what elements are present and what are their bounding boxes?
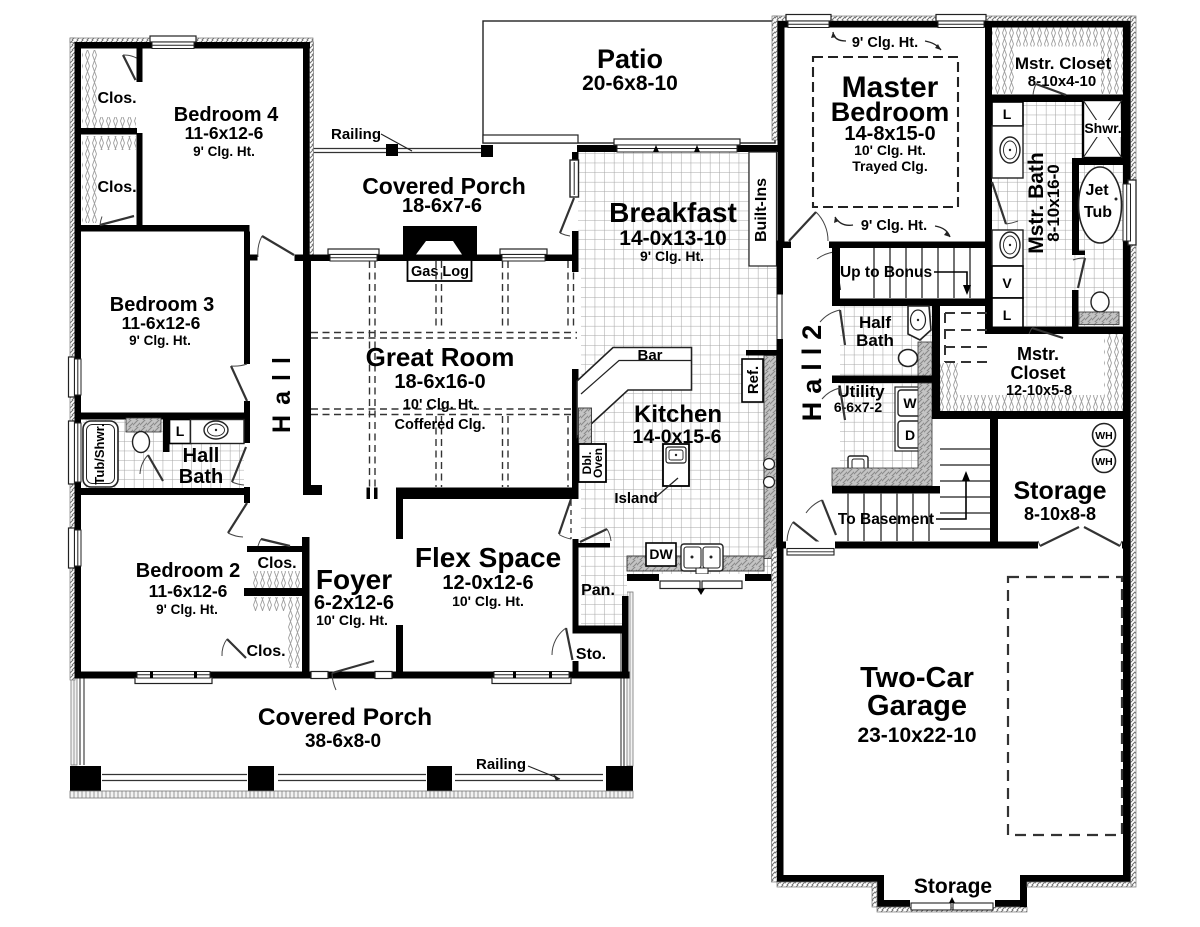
svg-text:38-6x8-0: 38-6x8-0	[305, 731, 381, 752]
svg-text:Bedroom 2: Bedroom 2	[136, 560, 240, 582]
svg-text:Covered Porch: Covered Porch	[258, 704, 432, 731]
svg-text:Clos.: Clos.	[257, 555, 296, 572]
svg-text:Railing: Railing	[476, 756, 526, 773]
svg-text:8-10x8-8: 8-10x8-8	[1024, 504, 1096, 524]
svg-text:Bath: Bath	[179, 466, 223, 488]
svg-text:W: W	[903, 395, 917, 411]
svg-text:Jet: Jet	[1085, 182, 1109, 199]
svg-text:To Basement: To Basement	[838, 511, 934, 528]
svg-text:11-6x12-6: 11-6x12-6	[122, 313, 201, 333]
svg-text:Shwr.: Shwr.	[1084, 120, 1121, 136]
svg-text:Ref.: Ref.	[745, 366, 762, 394]
svg-text:Oven: Oven	[591, 448, 605, 478]
svg-text:Gas Log: Gas Log	[411, 264, 469, 280]
svg-text:23-10x22-10: 23-10x22-10	[857, 724, 976, 747]
svg-text:V: V	[1002, 275, 1012, 291]
svg-text:12-0x12-6: 12-0x12-6	[442, 572, 533, 594]
svg-text:8-10x16-0: 8-10x16-0	[1044, 164, 1063, 242]
svg-text:Closet: Closet	[1010, 363, 1065, 383]
svg-text:Foyer: Foyer	[316, 564, 392, 595]
svg-text:9' Clg. Ht.: 9' Clg. Ht.	[193, 144, 255, 159]
svg-text:10' Clg. Ht.: 10' Clg. Ht.	[854, 142, 926, 158]
svg-text:Clos.: Clos.	[97, 90, 136, 107]
svg-text:Bar: Bar	[637, 347, 662, 364]
svg-text:9' Clg. Ht.: 9' Clg. Ht.	[861, 218, 927, 234]
svg-text:Storage: Storage	[914, 875, 992, 898]
svg-text:L: L	[176, 423, 185, 439]
svg-text:Great Room: Great Room	[366, 342, 515, 372]
svg-text:Clos.: Clos.	[246, 643, 285, 660]
svg-text:Tub/Shwr.: Tub/Shwr.	[92, 423, 107, 484]
svg-text:Clos.: Clos.	[97, 179, 136, 196]
svg-text:8-10x4-10: 8-10x4-10	[1028, 73, 1096, 90]
svg-text:Breakfast: Breakfast	[609, 197, 737, 228]
svg-text:Island: Island	[614, 490, 657, 507]
svg-text:Bath: Bath	[856, 331, 894, 350]
svg-text:Half: Half	[859, 313, 891, 332]
svg-text:Mstr. Closet: Mstr. Closet	[1015, 54, 1112, 73]
svg-text:Sto.: Sto.	[576, 646, 606, 663]
svg-text:Kitchen: Kitchen	[634, 401, 722, 428]
svg-text:11-6x12-6: 11-6x12-6	[149, 581, 228, 601]
svg-text:Railing: Railing	[331, 126, 381, 143]
svg-text:Hall2: Hall2	[797, 317, 827, 422]
svg-text:10' Clg. Ht.: 10' Clg. Ht.	[316, 612, 388, 628]
svg-text:D: D	[905, 427, 915, 443]
svg-text:Garage: Garage	[867, 690, 967, 722]
svg-text:L: L	[1003, 307, 1012, 323]
svg-text:12-10x5-8: 12-10x5-8	[1006, 383, 1072, 399]
svg-text:Mstr.: Mstr.	[1017, 344, 1059, 364]
svg-text:9' Clg. Ht.: 9' Clg. Ht.	[852, 35, 918, 51]
svg-text:Storage: Storage	[1013, 477, 1106, 505]
svg-text:Patio: Patio	[597, 44, 663, 74]
svg-text:Trayed Clg.: Trayed Clg.	[852, 158, 927, 174]
svg-text:Hall: Hall	[268, 347, 296, 433]
svg-text:9' Clg. Ht.: 9' Clg. Ht.	[156, 602, 218, 617]
svg-text:L: L	[1003, 106, 1012, 122]
svg-text:Hall: Hall	[183, 445, 220, 467]
svg-text:Up to Bonus: Up to Bonus	[840, 264, 932, 281]
svg-text:Tub: Tub	[1084, 204, 1112, 221]
svg-text:10' Clg. Ht.: 10' Clg. Ht.	[403, 397, 477, 413]
svg-text:20-6x8-10: 20-6x8-10	[582, 72, 678, 95]
svg-text:WH: WH	[1095, 456, 1113, 468]
svg-text:9' Clg. Ht.: 9' Clg. Ht.	[640, 248, 704, 264]
svg-text:9' Clg. Ht.: 9' Clg. Ht.	[129, 333, 191, 348]
svg-text:Flex Space: Flex Space	[415, 542, 561, 573]
svg-text:10' Clg. Ht.: 10' Clg. Ht.	[452, 593, 524, 609]
svg-text:Coffered Clg.: Coffered Clg.	[394, 417, 485, 433]
svg-text:14-0x13-10: 14-0x13-10	[619, 227, 726, 250]
svg-text:18-6x7-6: 18-6x7-6	[402, 195, 482, 217]
svg-text:6-2x12-6: 6-2x12-6	[314, 592, 394, 614]
svg-text:18-6x16-0: 18-6x16-0	[394, 371, 485, 393]
svg-text:Pan.: Pan.	[581, 582, 615, 599]
svg-text:Built-Ins: Built-Ins	[753, 178, 770, 242]
svg-text:11-6x12-6: 11-6x12-6	[185, 123, 264, 143]
svg-text:DW: DW	[649, 546, 673, 562]
svg-text:WH: WH	[1095, 430, 1113, 442]
